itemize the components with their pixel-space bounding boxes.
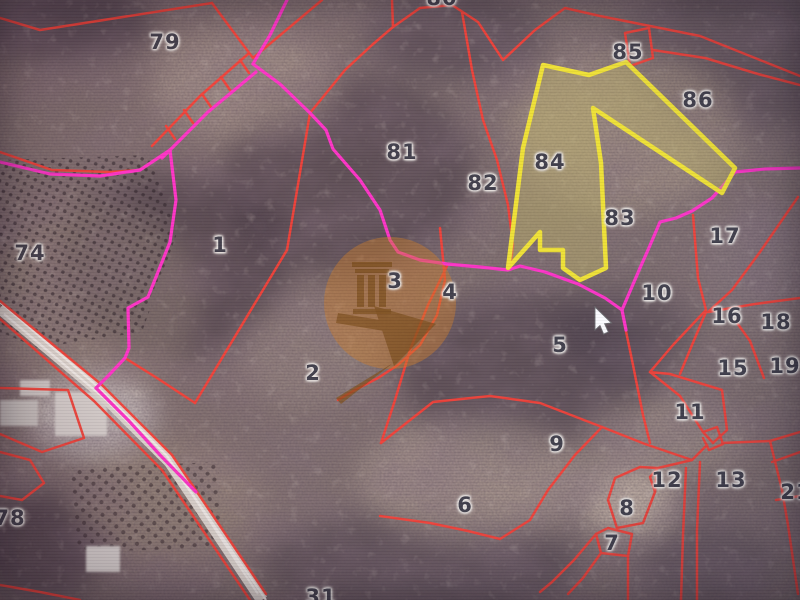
parcel-label-82: 82 <box>467 171 498 195</box>
parcel-label-84: 84 <box>534 150 565 174</box>
parcel-label-1: 1 <box>212 233 228 257</box>
parcel-label-4: 4 <box>442 280 458 304</box>
parcel-label-7: 7 <box>604 531 620 555</box>
parcel-label-21: 21 <box>780 480 800 504</box>
parcel-label-74: 74 <box>14 241 45 265</box>
parcel-boundary-red <box>392 0 393 27</box>
parcel-label-2: 2 <box>305 361 321 385</box>
parcel-label-81: 81 <box>386 140 417 164</box>
parcel-label-85: 85 <box>612 40 643 64</box>
parcel-label-78: 78 <box>0 506 26 530</box>
parcel-label-10: 10 <box>641 281 672 305</box>
parcel-label-17: 17 <box>709 224 740 248</box>
parcel-label-19: 19 <box>769 354 800 378</box>
parcel-label-13: 13 <box>715 468 746 492</box>
column-icon <box>352 262 392 314</box>
parcel-label-15: 15 <box>717 356 748 380</box>
parcel-label-11: 11 <box>674 400 705 424</box>
parcel-label-31: 31 <box>305 585 336 600</box>
parcel-label-83: 83 <box>604 206 635 230</box>
parcel-label-16: 16 <box>711 304 742 328</box>
parcel-label-12: 12 <box>651 468 682 492</box>
parcel-label-6: 6 <box>457 493 473 517</box>
building-block <box>86 546 120 572</box>
satellite-map[interactable] <box>0 0 800 600</box>
parcel-label-79: 79 <box>149 30 180 54</box>
parcel-label-18: 18 <box>760 310 791 334</box>
map-canvas[interactable]: 7980858681828483177413410161851519211912… <box>0 0 800 600</box>
parcel-label-3: 3 <box>387 269 403 293</box>
parcel-label-86: 86 <box>682 88 713 112</box>
parcel-label-5: 5 <box>552 333 568 357</box>
parcel-label-8: 8 <box>619 496 635 520</box>
building-block <box>0 400 38 426</box>
parcel-label-9: 9 <box>549 432 565 456</box>
parcel-label-80: 80 <box>426 0 457 10</box>
